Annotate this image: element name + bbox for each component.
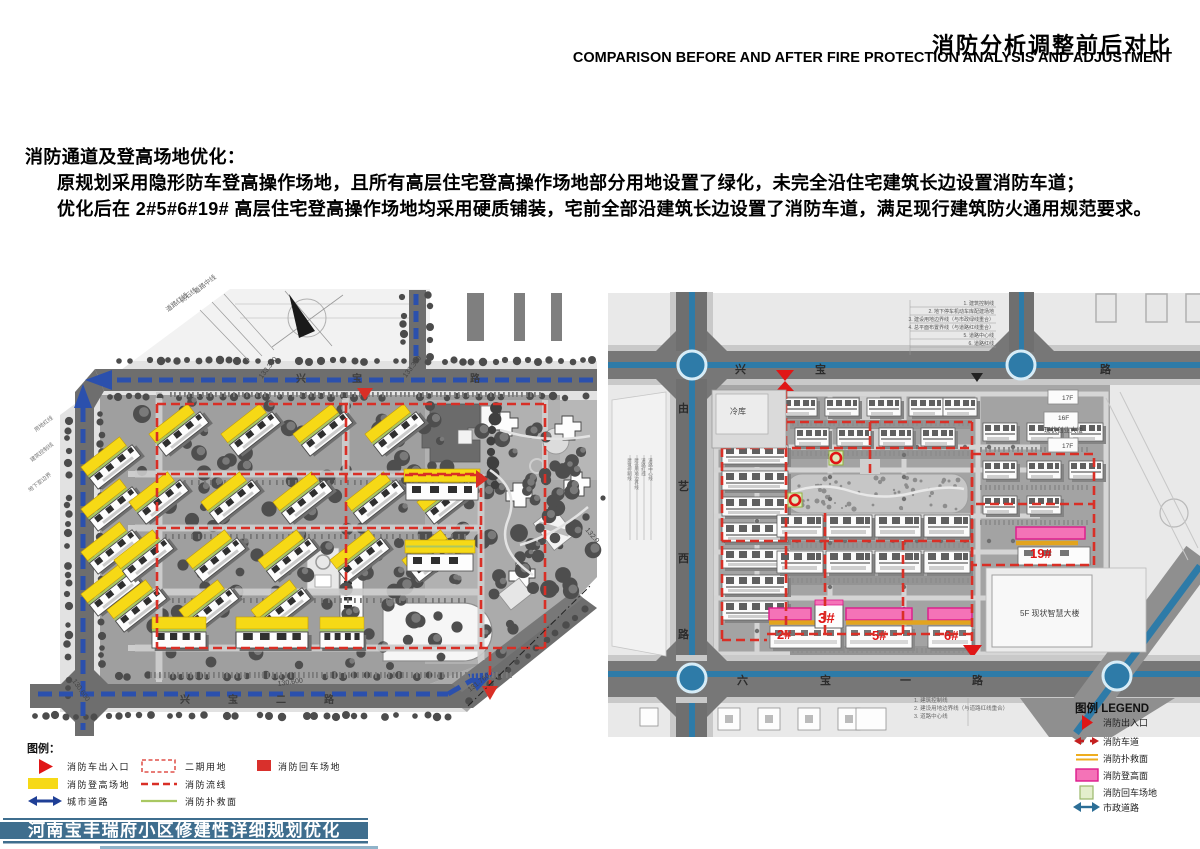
svg-text:图例 LEGEND: 图例 LEGEND [1075, 701, 1149, 715]
svg-text:3. 建设用地边界线（与市政绿线重合）: 3. 建设用地边界线（与市政绿线重合） [908, 316, 994, 323]
svg-text:建筑控制线: 建筑控制线 [28, 440, 55, 464]
svg-text:二期用地: 二期用地 [185, 761, 227, 772]
svg-text:地下室边界: 地下室边界 [26, 470, 53, 494]
svg-text:5#: 5# [872, 628, 887, 643]
svg-text:二: 二 [276, 694, 286, 706]
svg-text:消防出入口: 消防出入口 [1103, 717, 1148, 728]
svg-text:16F: 16F [1058, 415, 1069, 422]
svg-text:市政道路: 市政道路 [1103, 802, 1139, 813]
svg-text:消防回车场地: 消防回车场地 [278, 761, 341, 772]
svg-text:2. 地下停车机动车库配建场地: 2. 地下停车机动车库配建场地 [928, 308, 994, 315]
svg-text:道路红线: 道路红线 [641, 457, 647, 477]
svg-text:2. 建设用地边界线（与道路红线重合）: 2. 建设用地边界线（与道路红线重合） [914, 704, 1008, 712]
svg-text:19#: 19# [1030, 546, 1052, 561]
svg-text:图例：: 图例： [27, 741, 60, 755]
svg-text:5. 道路中心线: 5. 道路中心线 [963, 332, 994, 339]
svg-text:1. 建筑控制线: 1. 建筑控制线 [963, 300, 994, 307]
svg-text:建筑控制线: 建筑控制线 [627, 457, 633, 481]
svg-text:宝: 宝 [352, 372, 362, 385]
svg-text:艺: 艺 [678, 479, 689, 493]
svg-text:宝: 宝 [228, 693, 238, 706]
svg-text:河南宝丰瑞府小区修建性详细规划优化: 河南宝丰瑞府小区修建性详细规划优化 [28, 820, 341, 840]
svg-text:一: 一 [900, 675, 911, 687]
svg-text:现状创业大楼: 现状创业大楼 [1044, 425, 1084, 434]
svg-text:路: 路 [324, 693, 335, 706]
svg-text:由: 由 [678, 401, 689, 415]
svg-text:消防车道: 消防车道 [1103, 736, 1139, 747]
svg-text:兴: 兴 [296, 372, 306, 385]
svg-text:消防车出入口: 消防车出入口 [67, 761, 130, 772]
svg-text:17F: 17F [1062, 443, 1073, 450]
svg-text:路: 路 [972, 673, 984, 687]
svg-text:17F: 17F [1062, 395, 1073, 402]
svg-text:消防登高面: 消防登高面 [1103, 770, 1148, 781]
svg-text:5F 现状智慧大楼: 5F 现状智慧大楼 [1020, 608, 1080, 618]
svg-text:消防流线: 消防流线 [185, 779, 227, 790]
svg-text:六: 六 [737, 673, 748, 687]
svg-text:路: 路 [470, 372, 481, 385]
svg-text:4. 总平面布置界线（与道路红线重合）: 4. 总平面布置界线（与道路红线重合） [908, 324, 994, 331]
svg-text:6. 道路红线: 6. 道路红线 [968, 340, 994, 347]
svg-text:冷库: 冷库 [730, 406, 746, 416]
svg-text:路: 路 [1100, 362, 1112, 376]
svg-text:道路中心线: 道路中心线 [648, 457, 654, 481]
svg-text:消防回车场地: 消防回车场地 [1103, 787, 1157, 798]
svg-text:建设用地边界线: 建设用地边界线 [634, 457, 640, 490]
svg-text:西: 西 [678, 552, 689, 565]
svg-text:消防扑救面: 消防扑救面 [1103, 753, 1148, 764]
svg-text:兴: 兴 [735, 362, 746, 376]
svg-text:消防登高场地: 消防登高场地 [67, 779, 130, 790]
svg-text:道路中线: 道路中线 [192, 272, 218, 295]
svg-text:路: 路 [678, 627, 690, 641]
svg-text:3#: 3# [818, 610, 835, 627]
svg-text:消防扑救面: 消防扑救面 [185, 796, 238, 807]
svg-text:宝: 宝 [815, 362, 826, 376]
svg-text:宝: 宝 [820, 673, 831, 687]
svg-text:6#: 6# [944, 628, 959, 643]
svg-text:3. 道路中心线: 3. 道路中心线 [914, 712, 948, 720]
svg-text:城市道路: 城市道路 [67, 796, 109, 807]
svg-text:兴: 兴 [180, 693, 190, 706]
svg-text:1. 建筑控制线: 1. 建筑控制线 [914, 696, 948, 704]
svg-text:用地红线: 用地红线 [32, 413, 55, 433]
